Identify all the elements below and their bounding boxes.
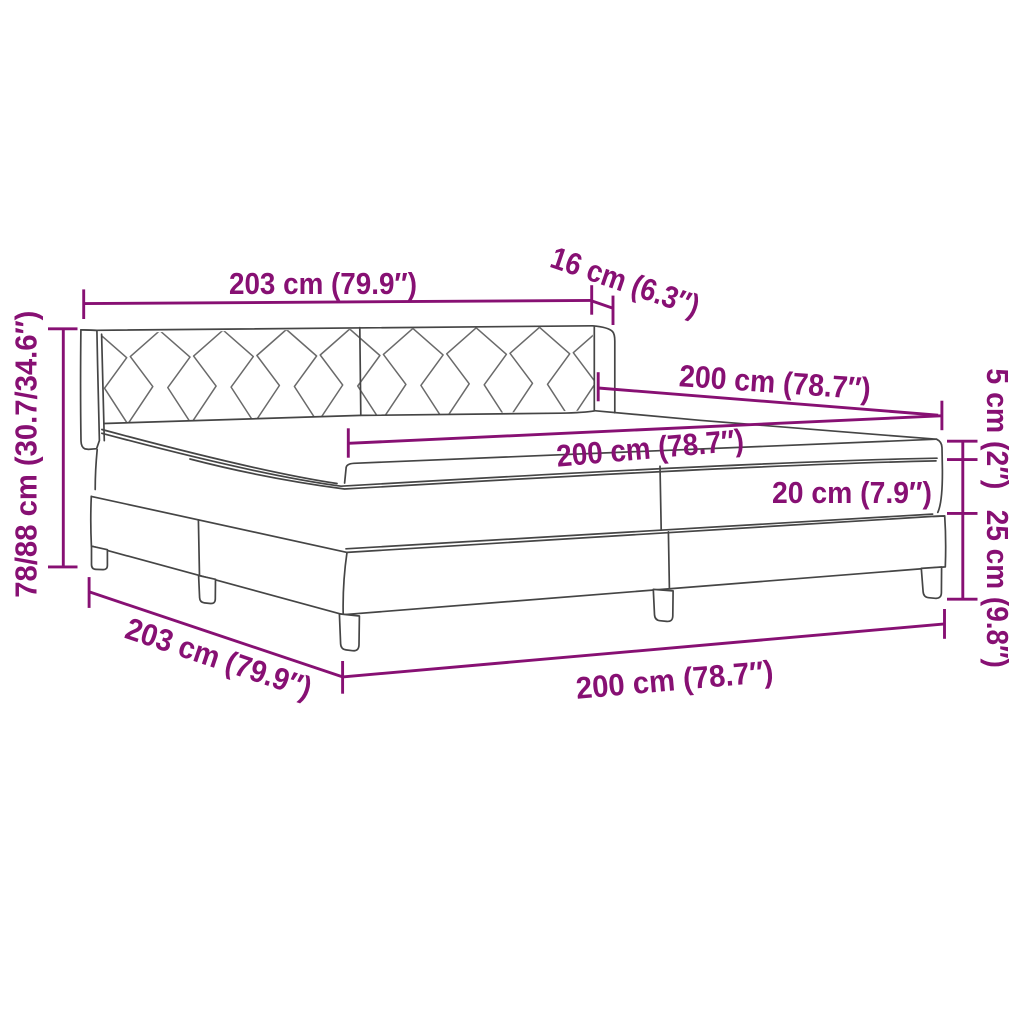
svg-text:203 cm (79.9″): 203 cm (79.9″)	[229, 266, 417, 301]
svg-text:20 cm (7.9″): 20 cm (7.9″)	[772, 475, 932, 510]
svg-text:25 cm (9.8″): 25 cm (9.8″)	[980, 510, 1015, 668]
svg-text:78/88 cm (30.7/34.6″): 78/88 cm (30.7/34.6″)	[8, 311, 43, 598]
svg-text:5 cm (2″): 5 cm (2″)	[980, 368, 1015, 489]
